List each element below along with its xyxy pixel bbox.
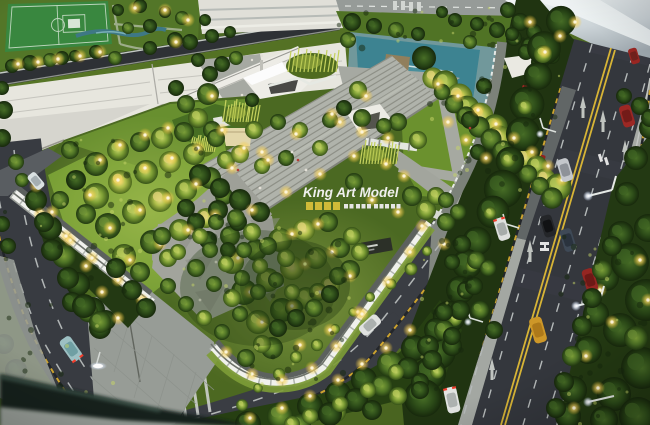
svg-text:King Art Model: King Art Model <box>303 185 399 200</box>
